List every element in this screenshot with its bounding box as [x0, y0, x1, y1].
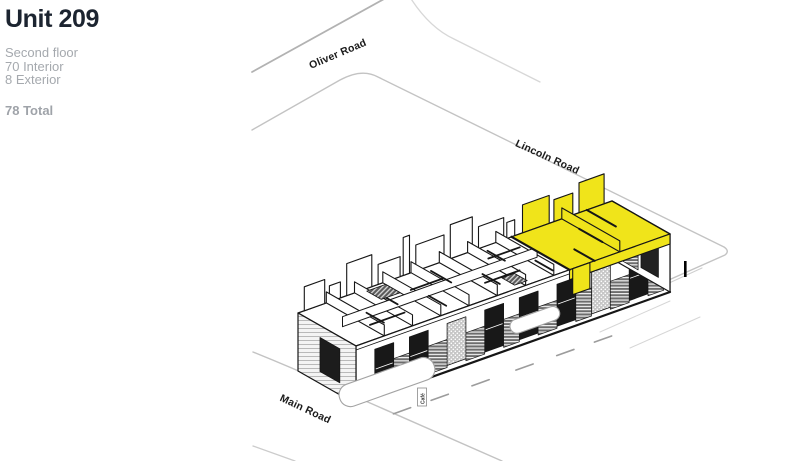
unit-interior-line: 70 Interior: [5, 60, 195, 74]
intersection-corner-arc: [408, 0, 540, 82]
oliver-road-far-edge: [252, 0, 422, 72]
cafe-label: Café: [421, 393, 427, 404]
oliver-road-label: Oliver Road: [307, 37, 368, 72]
unit-exterior-line: 8 Exterior: [5, 73, 195, 87]
lincoln-road-label: Lincoln Road: [513, 138, 581, 177]
main-road-label: Main Road: [278, 392, 333, 426]
cafe-sign: Café: [418, 388, 427, 406]
unit-title: Unit 209: [5, 6, 195, 32]
survey-marker: [684, 261, 687, 277]
unit-floor-line: Second floor: [5, 46, 195, 60]
lot-line-2: [630, 317, 700, 348]
main-road-far-edge: [253, 446, 295, 461]
unit-plan-page: Unit 209 Second floor 70 Interior 8 Exte…: [0, 0, 800, 461]
unit-info-panel: Unit 209 Second floor 70 Interior 8 Exte…: [5, 6, 195, 118]
unit-total-line: 78 Total: [5, 103, 195, 118]
